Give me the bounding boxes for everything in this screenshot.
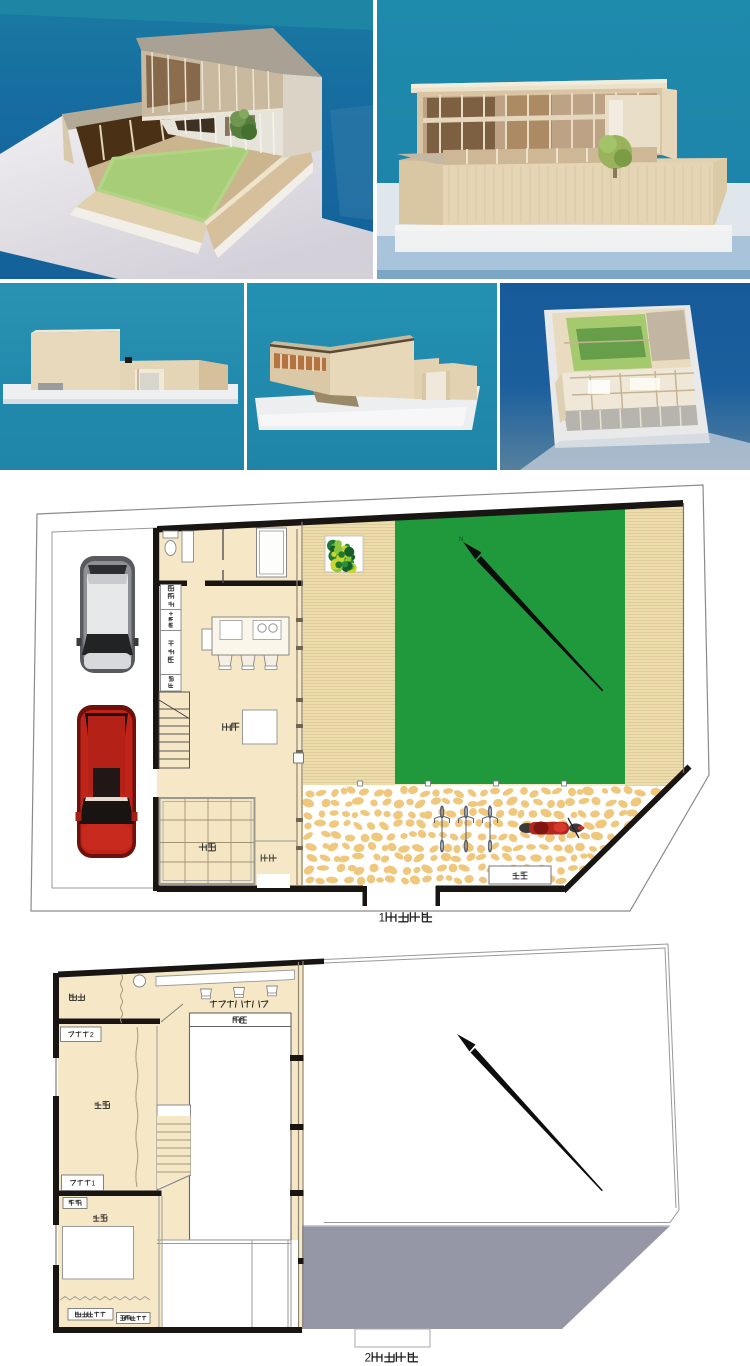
- svg-text:1: 1: [379, 912, 385, 924]
- svg-text:N: N: [459, 537, 463, 543]
- svg-text:2: 2: [90, 1032, 94, 1039]
- svg-text:1: 1: [92, 1180, 96, 1187]
- svg-text:2: 2: [365, 1352, 371, 1364]
